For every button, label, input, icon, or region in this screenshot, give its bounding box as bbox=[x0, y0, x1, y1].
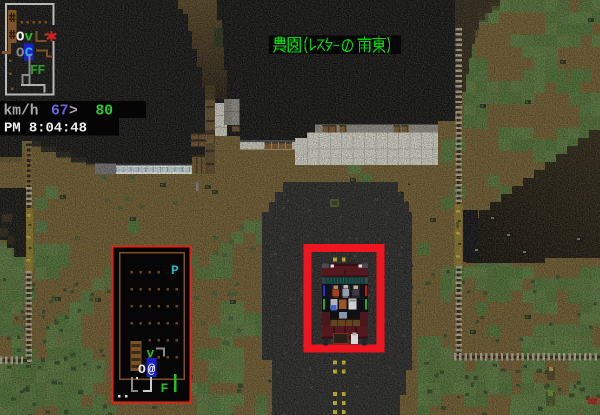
svg-text:PM 8:04:48: PM 8:04:48 bbox=[4, 121, 87, 137]
svg-text:FF: FF bbox=[30, 64, 46, 79]
svg-text:@: @ bbox=[148, 362, 156, 377]
svg-text:v: v bbox=[25, 30, 34, 46]
svg-text:>: > bbox=[69, 104, 78, 120]
svg-text:67: 67 bbox=[51, 104, 69, 120]
svg-text:km/h: km/h bbox=[4, 104, 39, 120]
svg-text:O: O bbox=[138, 362, 146, 377]
svg-text:F: F bbox=[161, 381, 169, 396]
svg-text:80: 80 bbox=[96, 104, 114, 120]
svg-text:O: O bbox=[16, 46, 24, 62]
svg-text:O: O bbox=[16, 30, 24, 46]
svg-text:P: P bbox=[171, 263, 179, 278]
